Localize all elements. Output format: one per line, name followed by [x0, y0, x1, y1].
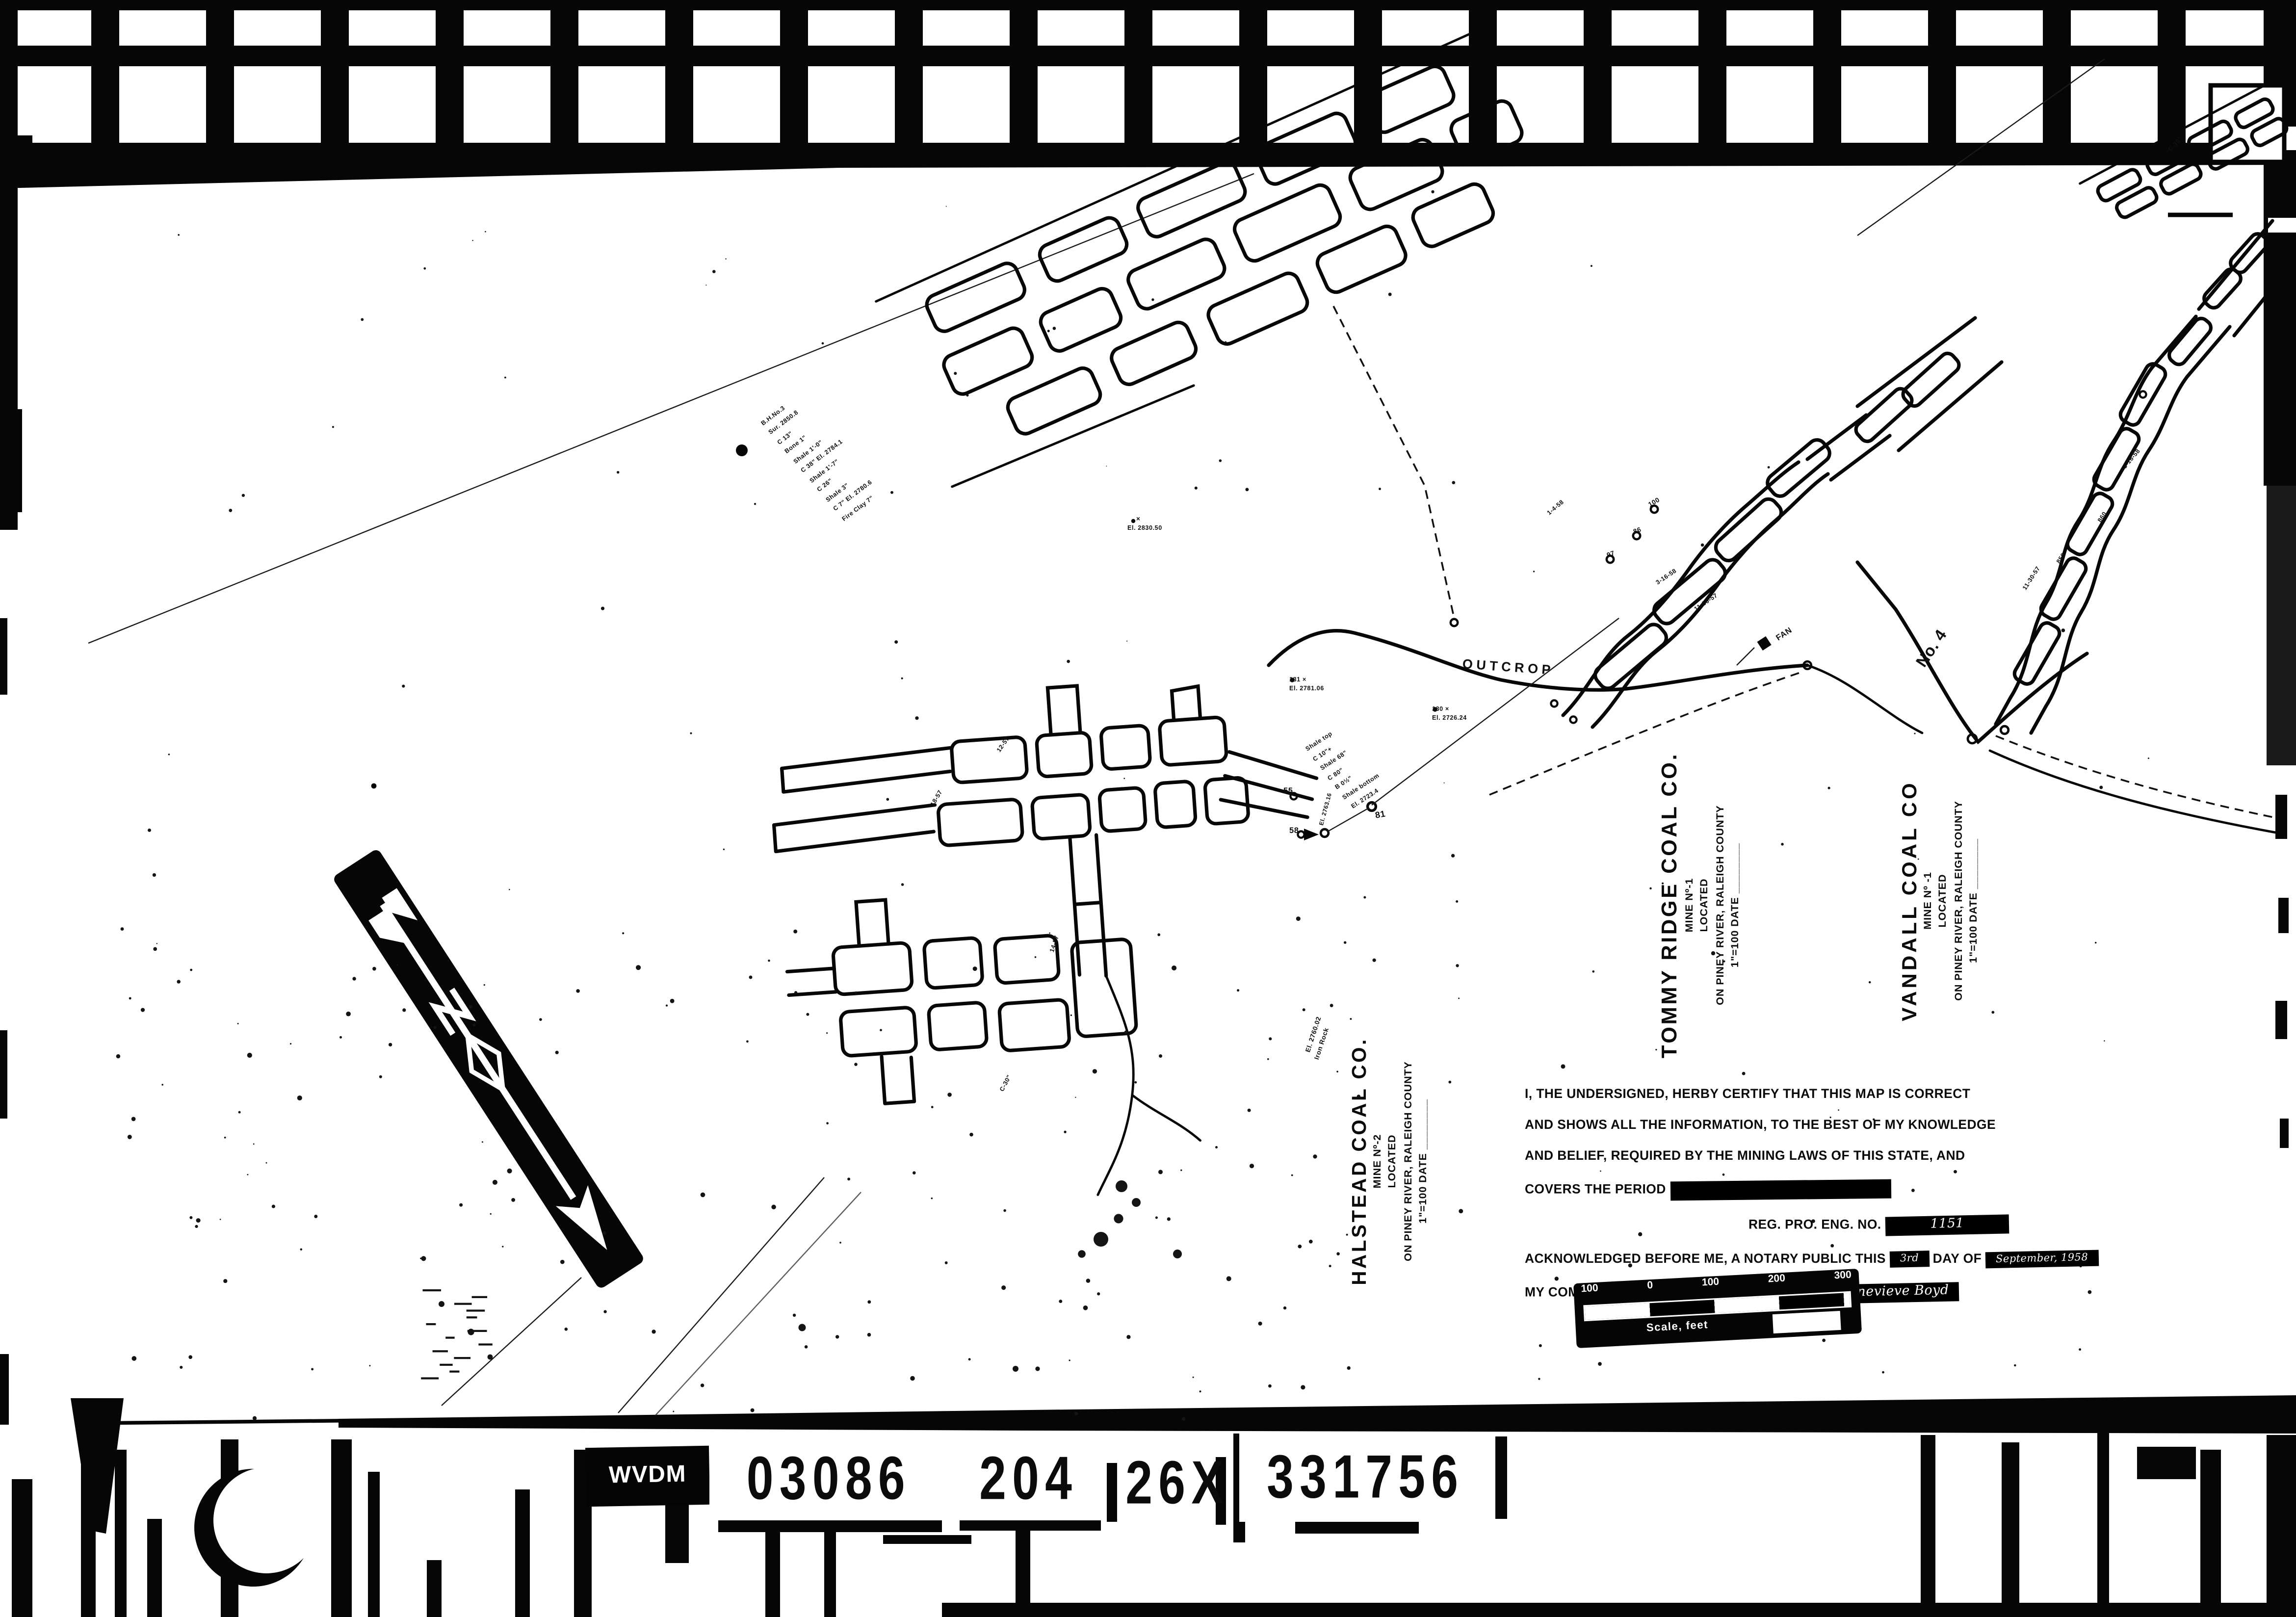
- ack-month-value: September, 1958: [1985, 1250, 2099, 1269]
- cert-covers-period: COVERS THE PERIOD: [1525, 1181, 1666, 1196]
- film-border-right: [2211, 0, 2296, 1148]
- microfilm-card: 03086: [709, 1438, 948, 1520]
- halstead-mine-no: MINE Nº-2: [1370, 1024, 1385, 1298]
- vandall-workings: [1996, 221, 2296, 734]
- halstead-portal-stations: [1290, 618, 1619, 840]
- map-annotation: 81: [1375, 810, 1386, 821]
- microfilm-card: 204: [957, 1439, 1101, 1520]
- scale-bar-blank-box: [1773, 1311, 1841, 1333]
- ack-day-of: DAY OF: [1933, 1251, 1982, 1266]
- scale-tick-label: 300: [1834, 1271, 1852, 1282]
- scale-tick-label: 200: [1768, 1274, 1785, 1285]
- map-annotation: El. 2781.06: [1289, 684, 1324, 691]
- microfilm-prefix-chip: WVDM: [585, 1446, 710, 1507]
- map-annotation: 55: [1283, 787, 1293, 796]
- scale-tick-label: 0: [1647, 1281, 1653, 1292]
- microfilm-card: 26X: [1119, 1445, 1236, 1522]
- halstead-label: HALSTEAD COAL CO. MINE Nº-2 LOCATED ON P…: [1348, 1024, 1431, 1298]
- map-annotation: ×: [1136, 515, 1140, 522]
- tommy-location: ON PINEY RIVER, RALEIGH COUNTY: [1713, 731, 1728, 1079]
- cert-line-2: AND SHOWS ALL THE INFORMATION, TO THE BE…: [1525, 1118, 2098, 1132]
- outcrop-line: [1269, 619, 2278, 833]
- film-border-left: [0, 0, 32, 1425]
- north-arrow: [332, 848, 646, 1290]
- tommy-ridge-title: TOMMY RIDGE COAL CO.: [1659, 731, 1682, 1079]
- redaction-bar: [1670, 1178, 1890, 1200]
- map-annotation: 131 ×: [1289, 676, 1306, 683]
- cert-line-3: AND BELIEF, REQUIRED BY THE MINING LAWS …: [1525, 1148, 2098, 1163]
- cert-ack-line: ACKNOWLEDGED BEFORE ME, A NOTARY PUBLIC …: [1525, 1251, 2098, 1268]
- reg-eng-label: REG. PRO. ENG. NO.: [1748, 1217, 1881, 1231]
- halstead-located: LOCATED: [1385, 1024, 1401, 1298]
- halstead-scale-date: 1"=100 DATE ________: [1416, 1024, 1432, 1298]
- microfilm-number-0: 03086: [746, 1445, 911, 1513]
- microfilm-card: 331756: [1239, 1434, 1492, 1522]
- vandall-title: VANDALL COAL CO: [1897, 756, 1921, 1045]
- microfilm-mine-map-page: OUTCROPNo. 4FAN555881El. 2763.16Shale to…: [0, 0, 2296, 1617]
- vandall-located: LOCATED: [1936, 756, 1951, 1045]
- halstead-location: ON PINEY RIVER, RALEIGH COUNTY: [1401, 1024, 1416, 1298]
- cert-reg-line: REG. PRO. ENG. NO. 1151: [1748, 1215, 2098, 1234]
- tommy-mine-no: MINE Nº-1: [1682, 731, 1697, 1079]
- borehole-marks: [371, 444, 1437, 788]
- reg-eng-number: 1151: [1885, 1214, 2009, 1236]
- map-annotation: 130 ×: [1432, 705, 1449, 712]
- map-annotation: 58: [1289, 827, 1299, 836]
- tommy-scale-date: 1"=100 DATE ________: [1728, 731, 1744, 1079]
- ack-text: ACKNOWLEDGED BEFORE ME, A NOTARY PUBLIC …: [1525, 1251, 1886, 1266]
- microfilm-number-2: 26X: [1125, 1449, 1229, 1518]
- vandall-location: ON PINEY RIVER, RALEIGH COUNTY: [1951, 756, 1966, 1045]
- halstead-title: HALSTEAD COAL CO.: [1348, 1024, 1370, 1298]
- scale-bar-caption: Scale, feet: [1646, 1318, 1708, 1334]
- microfilm-number-1: 204: [979, 1445, 1078, 1514]
- scale-tick-label: 100: [1701, 1278, 1719, 1289]
- map-stage: OUTCROPNo. 4FAN555881El. 2763.16Shale to…: [0, 0, 2296, 1617]
- map-annotation: El. 2830.50: [1127, 524, 1162, 531]
- microfilm-number-3: 331756: [1267, 1443, 1464, 1512]
- ack-day-value: 3rd: [1889, 1251, 1929, 1268]
- vandall-scale-date: 1"=100 DATE ________: [1967, 756, 1982, 1045]
- map-annotation: El. 2726.24: [1432, 713, 1467, 721]
- vandall-label: VANDALL COAL CO MINE Nº -1 LOCATED ON PI…: [1897, 756, 1983, 1045]
- tommy-ridge-workings: [1551, 318, 2002, 727]
- film-border-top: [0, 0, 2296, 188]
- tommy-located: LOCATED: [1697, 731, 1713, 1079]
- scale-tick-label: 100: [1581, 1284, 1598, 1295]
- tommy-ridge-label: TOMMY RIDGE COAL CO. MINE Nº-1 LOCATED O…: [1659, 731, 1744, 1079]
- cert-line-1: I, THE UNDERSIGNED, HERBY CERTIFY THAT T…: [1525, 1086, 2098, 1101]
- vandall-mine-no: MINE Nº -1: [1921, 756, 1936, 1045]
- cert-line-4: COVERS THE PERIOD: [1525, 1180, 2098, 1199]
